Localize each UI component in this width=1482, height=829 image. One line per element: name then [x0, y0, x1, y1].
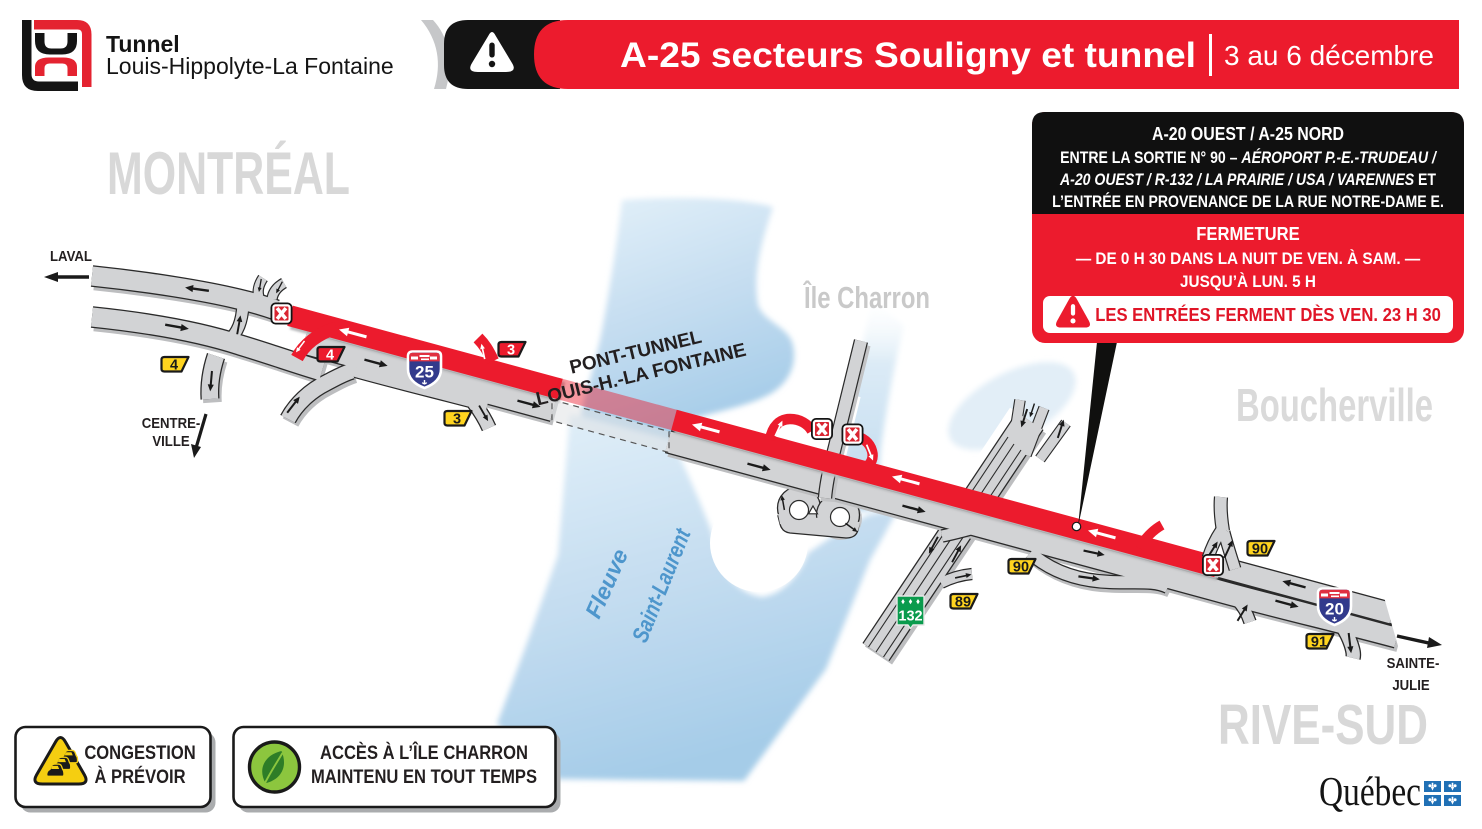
svg-text:Québec: Québec [1319, 768, 1421, 814]
svg-text:MAINTENU EN TOUT TEMPS: MAINTENU EN TOUT TEMPS [311, 766, 537, 788]
svg-text:RIVE-SUD: RIVE-SUD [1218, 693, 1428, 757]
svg-text:CONGESTION: CONGESTION [84, 742, 195, 764]
svg-text:L’ENTRÉE EN PROVENANCE DE LA R: L’ENTRÉE EN PROVENANCE DE LA RUE NOTRE-D… [1052, 193, 1444, 211]
svg-text:SAINTE-: SAINTE- [1387, 654, 1440, 671]
svg-text:3: 3 [453, 412, 461, 428]
svg-text:25: 25 [415, 363, 434, 382]
svg-text:90: 90 [1013, 560, 1029, 576]
svg-text:JULIE: JULIE [1392, 676, 1429, 693]
svg-text:90: 90 [1252, 542, 1268, 558]
svg-text:FERMETURE: FERMETURE [1196, 223, 1300, 244]
svg-text:MONTRÉAL: MONTRÉAL [107, 140, 350, 207]
svg-text:3: 3 [507, 343, 515, 359]
svg-text:20: 20 [1325, 600, 1344, 619]
svg-text:A-20 OUEST / R-132 / LA PRAIRI: A-20 OUEST / R-132 / LA PRAIRIE / USA / … [1059, 171, 1437, 189]
svg-text:89: 89 [955, 595, 971, 611]
svg-text:132: 132 [898, 609, 922, 625]
svg-text:— DE 0 H 30 DANS LA NUIT DE VE: — DE 0 H 30 DANS LA NUIT DE VEN. À SAM. … [1076, 248, 1421, 268]
svg-text:4: 4 [170, 358, 178, 374]
svg-text:VILLE: VILLE [152, 432, 189, 449]
svg-text:ACCÈS À L’ÎLE CHARRON: ACCÈS À L’ÎLE CHARRON [320, 741, 528, 764]
svg-text:ENTRE LA SORTIE N° 90 – AÉROPO: ENTRE LA SORTIE N° 90 – AÉROPORT P.-E.-T… [1060, 149, 1437, 167]
svg-text:Louis-Hippolyte-La Fontaine: Louis-Hippolyte-La Fontaine [106, 53, 394, 79]
svg-text:91: 91 [1311, 635, 1327, 651]
svg-text:LAVAL: LAVAL [50, 247, 92, 264]
svg-text:CENTRE-: CENTRE- [142, 414, 201, 431]
svg-text:4: 4 [326, 348, 334, 364]
svg-text:3 au 6 décembre: 3 au 6 décembre [1224, 40, 1434, 71]
svg-text:A-25 secteurs Souligny et tunn: A-25 secteurs Souligny et tunnel [620, 36, 1196, 75]
svg-text:JUSQU’À LUN. 5 H: JUSQU’À LUN. 5 H [1180, 271, 1316, 291]
svg-text:Boucherville: Boucherville [1236, 379, 1433, 431]
svg-text:Île Charron: Île Charron [802, 279, 930, 315]
svg-text:À PRÉVOIR: À PRÉVOIR [94, 765, 185, 788]
svg-text:LES ENTRÉES FERMENT DÈS VEN. 2: LES ENTRÉES FERMENT DÈS VEN. 23 H 30 [1095, 303, 1441, 325]
svg-text:A-20 OUEST / A-25 NORD: A-20 OUEST / A-25 NORD [1152, 123, 1344, 144]
